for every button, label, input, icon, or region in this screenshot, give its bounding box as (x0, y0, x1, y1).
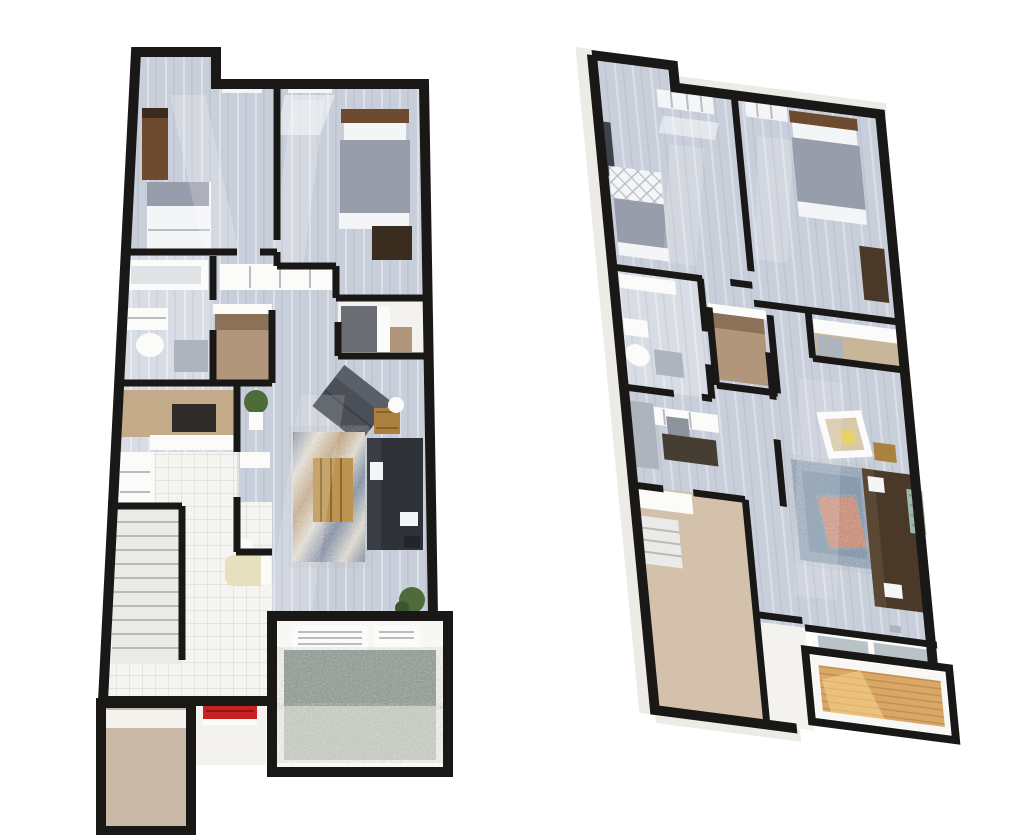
toilet-icon (136, 333, 164, 357)
bed-icon (339, 109, 410, 229)
right-floor-plan (575, 47, 958, 762)
tub-end (261, 556, 271, 585)
vanity-icon (240, 452, 270, 468)
left-stairs-icon (112, 508, 182, 664)
bathtub-basin (131, 266, 201, 284)
floor-plan-canvas (0, 0, 1024, 835)
left-entry (192, 701, 266, 765)
garage-back-wall (104, 710, 188, 728)
shower-mat (654, 349, 684, 378)
sofa-icon (367, 438, 423, 550)
side-table-icon (873, 442, 897, 463)
storage-box (816, 335, 844, 358)
dresser-icon (341, 306, 377, 352)
closet-door-frame (213, 304, 272, 314)
closet-back (215, 314, 270, 330)
patio-lounge-chair-icon (292, 626, 368, 650)
bench-icon (372, 226, 412, 260)
storage-box (390, 327, 412, 352)
sink-icon (623, 318, 649, 338)
counter-icon (150, 435, 237, 450)
entry-bench-base (203, 719, 257, 725)
wardrobe-icon (142, 108, 168, 180)
gravel-icon (284, 706, 436, 760)
patio-lounge-chair-icon (374, 626, 420, 648)
gravel-icon (284, 650, 436, 706)
cooktop-icon (172, 404, 216, 432)
wardrobe-top (142, 108, 168, 118)
bed-icon (789, 110, 867, 225)
left-patio (272, 616, 448, 772)
shelf-divider (377, 306, 390, 352)
floor-plans-image (0, 0, 1024, 835)
left-storage-room (101, 703, 191, 831)
left-floor-plan (100, 48, 448, 831)
headboard-icon (341, 109, 409, 123)
shower-icon (174, 340, 208, 372)
desk-chair-icon (666, 416, 690, 437)
left-closet-nook (338, 300, 424, 355)
